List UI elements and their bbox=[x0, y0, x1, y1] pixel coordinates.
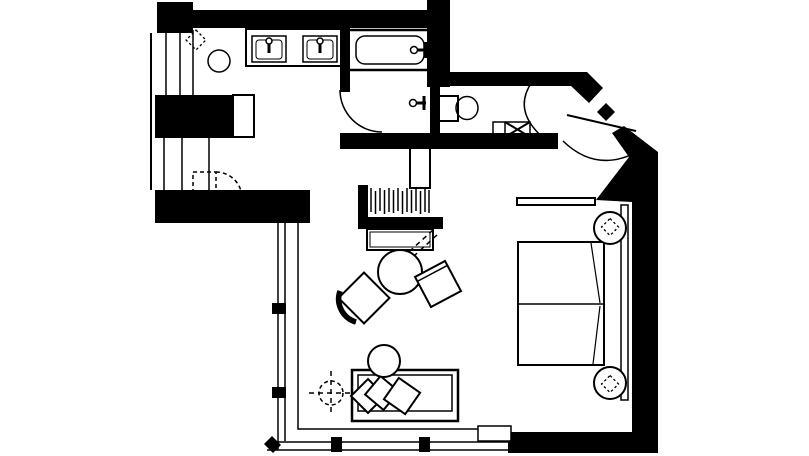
cabinet-tall bbox=[410, 148, 430, 188]
vanity-counter bbox=[246, 29, 341, 66]
floor-plan-canvas bbox=[0, 0, 809, 456]
closet-hangers bbox=[371, 188, 429, 214]
closet-wall-bottom bbox=[358, 217, 443, 229]
ceiling-light-cross bbox=[309, 371, 353, 415]
cabinet-column bbox=[233, 95, 254, 137]
mullion-bottom-2 bbox=[419, 437, 430, 452]
shower-valve-knob bbox=[410, 100, 417, 107]
floor-plan-svg bbox=[0, 0, 809, 456]
ottoman bbox=[368, 345, 400, 377]
toilet-bowl bbox=[456, 97, 478, 120]
vanity-stool bbox=[208, 50, 230, 72]
wall-wc-top bbox=[438, 72, 572, 86]
window-ledge bbox=[478, 426, 511, 441]
wall-mid-horizontal bbox=[340, 133, 558, 149]
entry-door-leaf bbox=[567, 115, 636, 131]
window-left-glass bbox=[278, 223, 285, 450]
mullion-bottom-1 bbox=[331, 437, 342, 452]
wc-door-arc bbox=[524, 82, 547, 141]
coffee-table bbox=[378, 250, 422, 294]
wall-top bbox=[157, 10, 447, 28]
wall-entry-diagonal-upper bbox=[570, 72, 603, 103]
mullion-left-1 bbox=[272, 303, 286, 314]
wall-left-block bbox=[155, 95, 233, 138]
nightstand-top bbox=[594, 212, 626, 244]
shower-door-arc bbox=[340, 90, 382, 132]
sink-right-faucet bbox=[317, 38, 323, 44]
plant-vanity bbox=[186, 30, 206, 50]
window-bottom-glass bbox=[267, 442, 508, 450]
nightstand-bottom bbox=[594, 367, 626, 399]
sink-left-faucet bbox=[266, 38, 272, 44]
wall-bottom-left bbox=[155, 190, 310, 223]
tub-faucet-knob bbox=[411, 47, 418, 54]
bed-shelf bbox=[517, 198, 595, 205]
entry-door-jamb-nub bbox=[597, 103, 615, 121]
toilet-tank bbox=[438, 96, 458, 121]
mullion-left-2 bbox=[272, 387, 286, 398]
